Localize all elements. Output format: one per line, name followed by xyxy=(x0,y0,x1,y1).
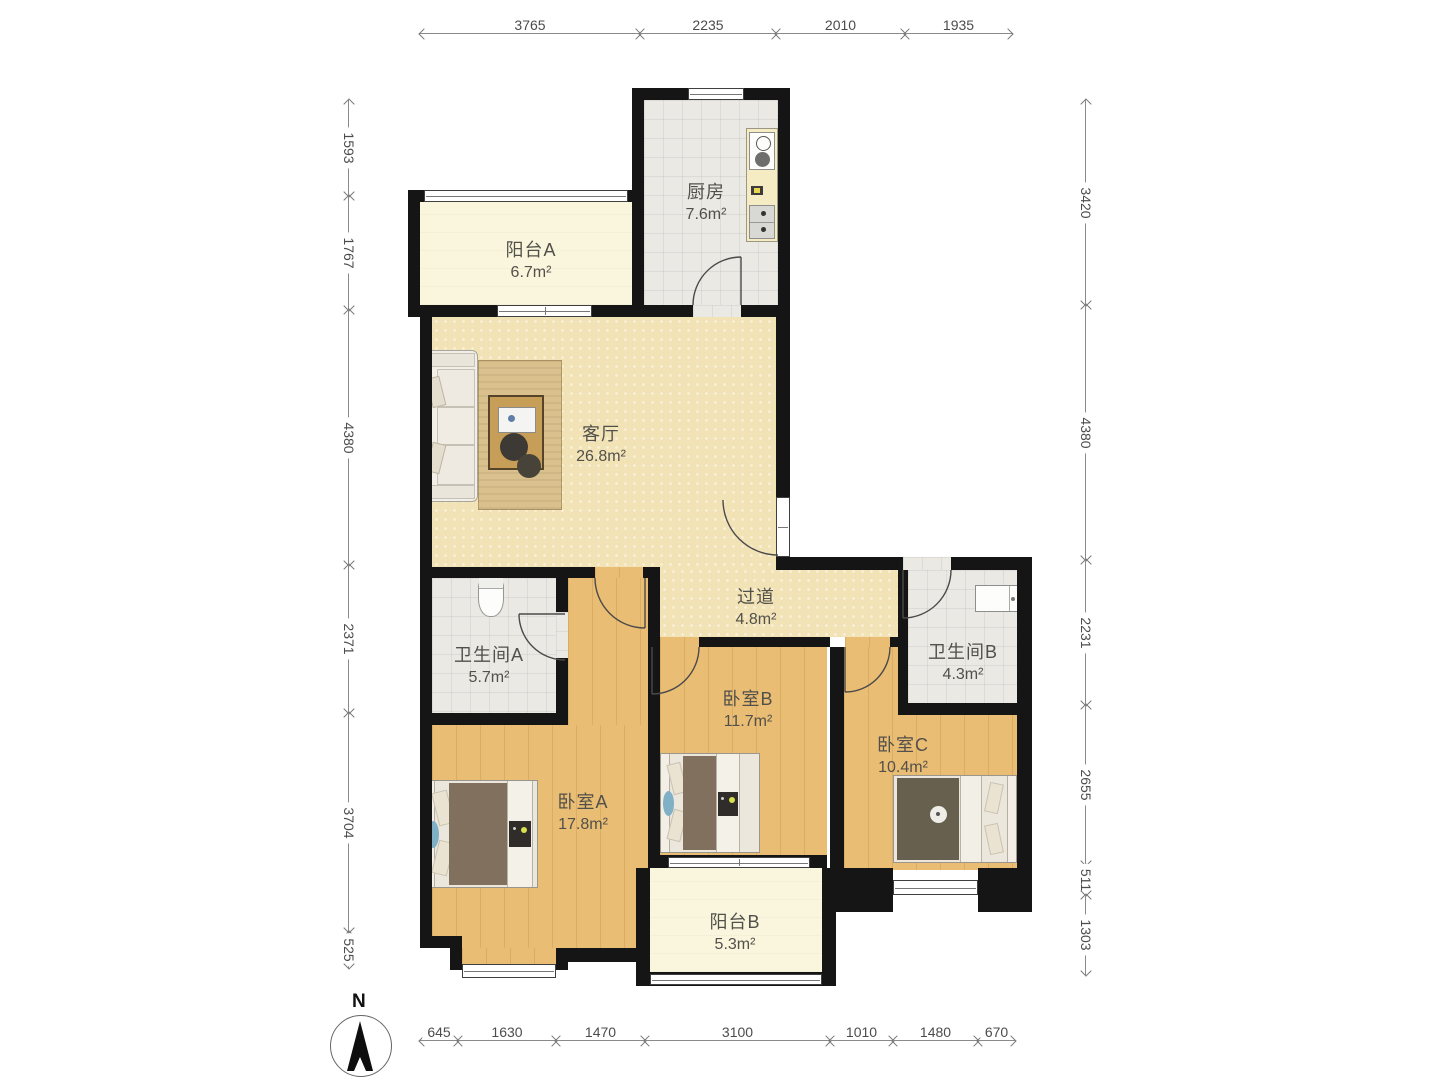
dimension-bottom-7: 670 xyxy=(978,1040,1015,1041)
dimension-top-3: 2010 xyxy=(776,33,905,34)
dimension-bottom-3: 1470 xyxy=(556,1040,645,1041)
dimension-top-4: 1935 xyxy=(905,33,1012,34)
dimension-right-1: 3420 xyxy=(1085,100,1086,305)
north-label: N xyxy=(352,991,366,1013)
room-name: 卫生间B xyxy=(928,638,998,664)
dimension-right-5: 511 xyxy=(1085,865,1086,895)
room-label-bathroom-a: 卫生间A 5.7m² xyxy=(454,641,524,687)
dimension-value: 3100 xyxy=(717,1024,758,1040)
dimension-top-2: 2235 xyxy=(640,33,776,34)
room-area: 7.6m² xyxy=(686,206,727,224)
dimension-value: 1010 xyxy=(841,1024,882,1040)
door-arc-bedroom-b xyxy=(652,647,699,694)
dimension-value: 2371 xyxy=(341,618,357,659)
dimension-left-2: 1767 xyxy=(348,196,349,310)
dimension-left-3: 4380 xyxy=(348,310,349,565)
dimension-value: 2231 xyxy=(1078,612,1094,653)
room-area: 4.3m² xyxy=(928,666,998,684)
dimension-value: 1480 xyxy=(915,1024,956,1040)
dimension-value: 1630 xyxy=(486,1024,527,1040)
door-arc-bedroom-a xyxy=(595,578,645,628)
dimension-right-6: 1303 xyxy=(1085,895,1086,975)
room-label-balcony-a: 阳台A 6.7m² xyxy=(505,236,556,282)
dimension-value: 2010 xyxy=(820,17,861,33)
dimension-value: 3420 xyxy=(1078,182,1094,223)
room-area: 6.7m² xyxy=(505,264,556,282)
dimension-right-4: 2655 xyxy=(1085,705,1086,865)
room-label-bedroom-c: 卧室C 10.4m² xyxy=(877,731,929,777)
dimension-left-4: 2371 xyxy=(348,565,349,713)
dimension-right-3: 2231 xyxy=(1085,560,1086,705)
room-name: 卫生间A xyxy=(454,641,524,667)
door-arc-bathroom-b xyxy=(903,570,951,618)
room-label-bedroom-b: 卧室B 11.7m² xyxy=(722,685,773,731)
door-arc-bedroom-c xyxy=(845,647,890,692)
room-area: 26.8m² xyxy=(576,448,626,466)
room-name: 过道 xyxy=(736,583,777,609)
room-name: 卧室A xyxy=(557,788,608,814)
dimension-value: 2655 xyxy=(1078,764,1094,805)
north-compass: N xyxy=(330,995,392,1080)
room-area: 5.7m² xyxy=(454,669,524,687)
room-area: 17.8m² xyxy=(557,816,608,834)
north-arrow-notch xyxy=(354,1057,366,1071)
dimension-value: 511 xyxy=(1078,864,1094,896)
dimension-value: 525 xyxy=(341,933,357,966)
room-name: 阳台B xyxy=(709,908,760,934)
room-label-balcony-b: 阳台B 5.3m² xyxy=(709,908,760,954)
room-area: 5.3m² xyxy=(709,936,760,954)
floorplan-canvas: 厨房 7.6m² 阳台A 6.7m² 客厅 26.8m² 过道 4.8m² 卫生… xyxy=(0,0,1440,1080)
room-label-bathroom-b: 卫生间B 4.3m² xyxy=(928,638,998,684)
room-label-kitchen: 厨房 7.6m² xyxy=(686,178,727,224)
dimension-value: 1767 xyxy=(341,232,357,273)
room-name: 卧室B xyxy=(722,685,773,711)
door-arc-bathroom-a xyxy=(519,614,565,660)
room-name: 卧室C xyxy=(877,731,929,757)
dimension-top-1: 3765 xyxy=(420,33,640,34)
dimension-value: 3765 xyxy=(509,17,550,33)
room-name: 客厅 xyxy=(576,420,626,446)
dimension-left-6: 525 xyxy=(348,932,349,968)
dimension-value: 4380 xyxy=(341,417,357,458)
room-label-bedroom-a: 卧室A 17.8m² xyxy=(557,788,608,834)
room-area: 11.7m² xyxy=(722,713,773,731)
dimension-right-2: 4380 xyxy=(1085,305,1086,560)
room-area: 10.4m² xyxy=(877,759,929,777)
dimension-value: 670 xyxy=(980,1024,1013,1040)
dimension-value: 645 xyxy=(422,1024,455,1040)
room-area: 4.8m² xyxy=(736,611,777,629)
room-name: 阳台A xyxy=(505,236,556,262)
dimension-value: 3704 xyxy=(341,802,357,843)
dimension-value: 2235 xyxy=(687,17,728,33)
dimension-value: 1470 xyxy=(580,1024,621,1040)
dimension-left-5: 3704 xyxy=(348,713,349,932)
dimension-value: 4380 xyxy=(1078,412,1094,453)
dimension-bottom-1: 645 xyxy=(420,1040,458,1041)
room-label-hallway: 过道 4.8m² xyxy=(736,583,777,629)
room-label-living: 客厅 26.8m² xyxy=(576,420,626,466)
door-arc-kitchen xyxy=(693,257,741,305)
dimension-bottom-5: 1010 xyxy=(830,1040,893,1041)
dimension-value: 1303 xyxy=(1078,914,1094,955)
dimension-value: 1593 xyxy=(341,127,357,168)
dimension-left-1: 1593 xyxy=(348,100,349,196)
dimension-bottom-6: 1480 xyxy=(893,1040,978,1041)
room-name: 厨房 xyxy=(686,178,727,204)
dimension-value: 1935 xyxy=(938,17,979,33)
door-arc-entry xyxy=(723,500,778,555)
dimension-bottom-2: 1630 xyxy=(458,1040,556,1041)
dimension-bottom-4: 3100 xyxy=(645,1040,830,1041)
